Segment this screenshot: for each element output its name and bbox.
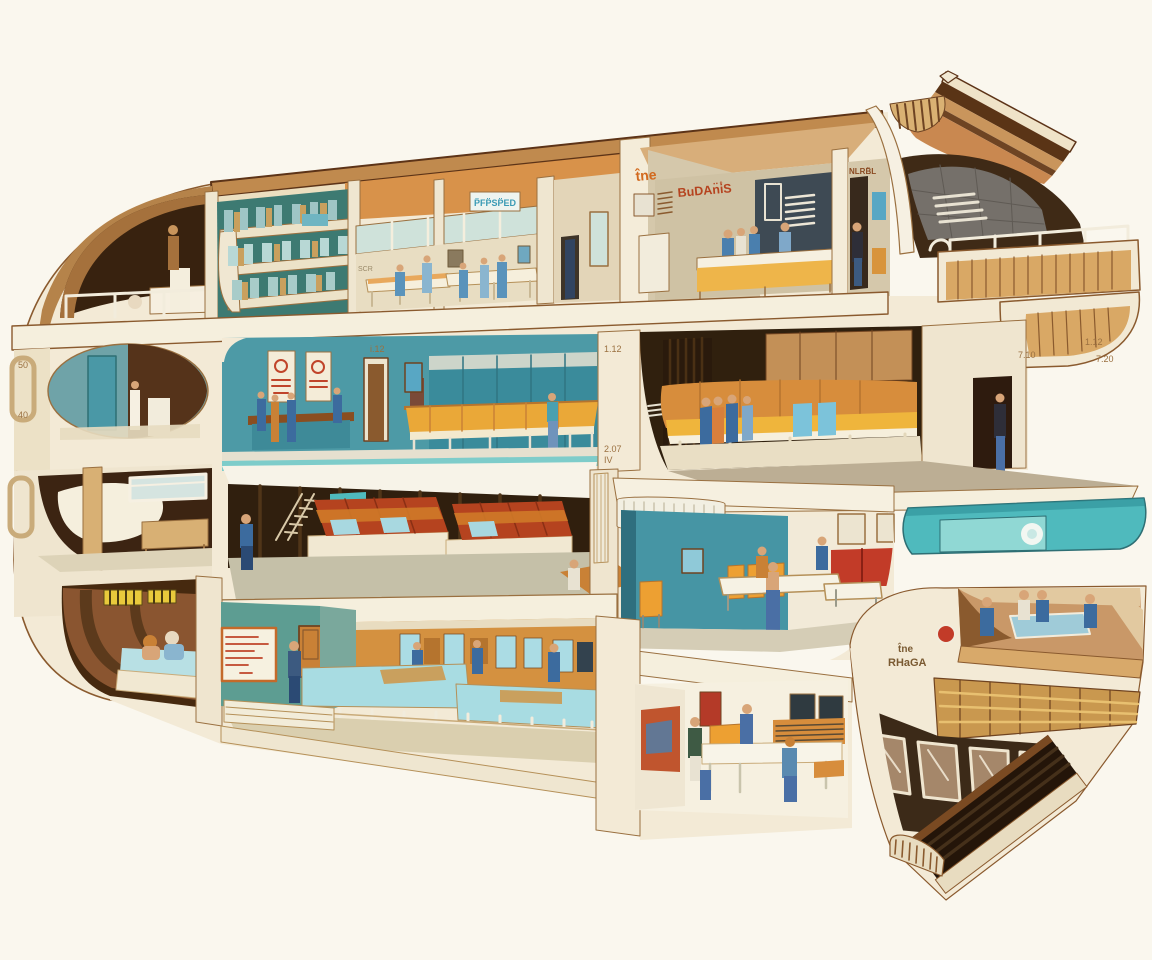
svg-text:P̈FP̈SP̈ED: P̈FP̈SP̈ED — [474, 198, 517, 208]
svg-text:t̂ne: t̂ne — [634, 165, 657, 184]
svg-text:t̂ne: t̂ne — [898, 643, 914, 655]
svg-text:SCR: SCR — [358, 266, 373, 273]
svg-text:7.20: 7.20 — [1096, 354, 1114, 364]
svg-text:50: 50 — [18, 360, 28, 370]
svg-text:7.10: 7.10 — [1018, 350, 1036, 360]
svg-text:IV: IV — [604, 455, 613, 465]
svg-text:i.12: i.12 — [370, 344, 385, 354]
svg-text:RHaGA: RHaGA — [888, 657, 927, 669]
svg-text:2.07: 2.07 — [604, 444, 622, 454]
svg-text:NLRB̈L: NLRB̈L — [849, 167, 876, 176]
svg-text:1.12: 1.12 — [604, 344, 622, 354]
svg-text:40: 40 — [18, 410, 28, 420]
svg-text:1.12: 1.12 — [1085, 337, 1103, 347]
